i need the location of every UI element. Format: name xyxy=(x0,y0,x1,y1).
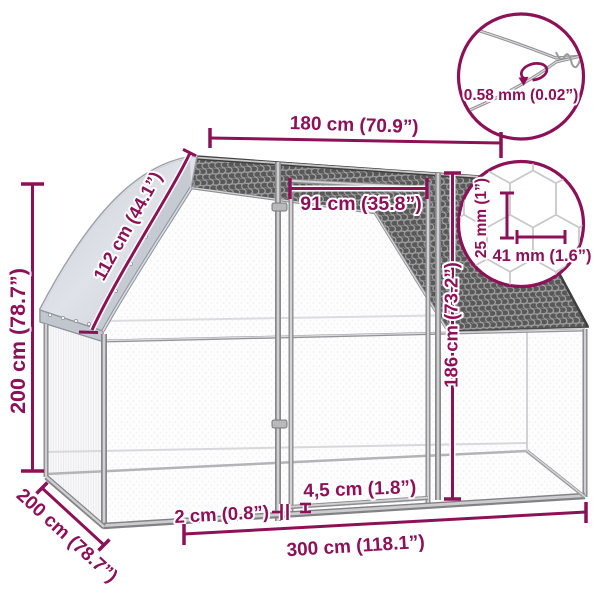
svg-text:200 cm (78.7”): 200 cm (78.7”) xyxy=(6,268,30,414)
svg-text:25 mm (1”): 25 mm (1”) xyxy=(473,178,490,258)
svg-text:91 cm (35.8”): 91 cm (35.8”) xyxy=(300,193,421,215)
svg-text:186 cm (73.2”): 186 cm (73.2”) xyxy=(441,262,462,387)
svg-text:180 cm (70.9”): 180 cm (70.9”) xyxy=(289,113,418,138)
svg-text:41 mm (1.6”): 41 mm (1.6”) xyxy=(492,247,591,265)
svg-text:0.58 mm (0.02”): 0.58 mm (0.02”) xyxy=(464,87,579,104)
svg-text:4,5 cm (1.8”): 4,5 cm (1.8”) xyxy=(303,477,417,502)
